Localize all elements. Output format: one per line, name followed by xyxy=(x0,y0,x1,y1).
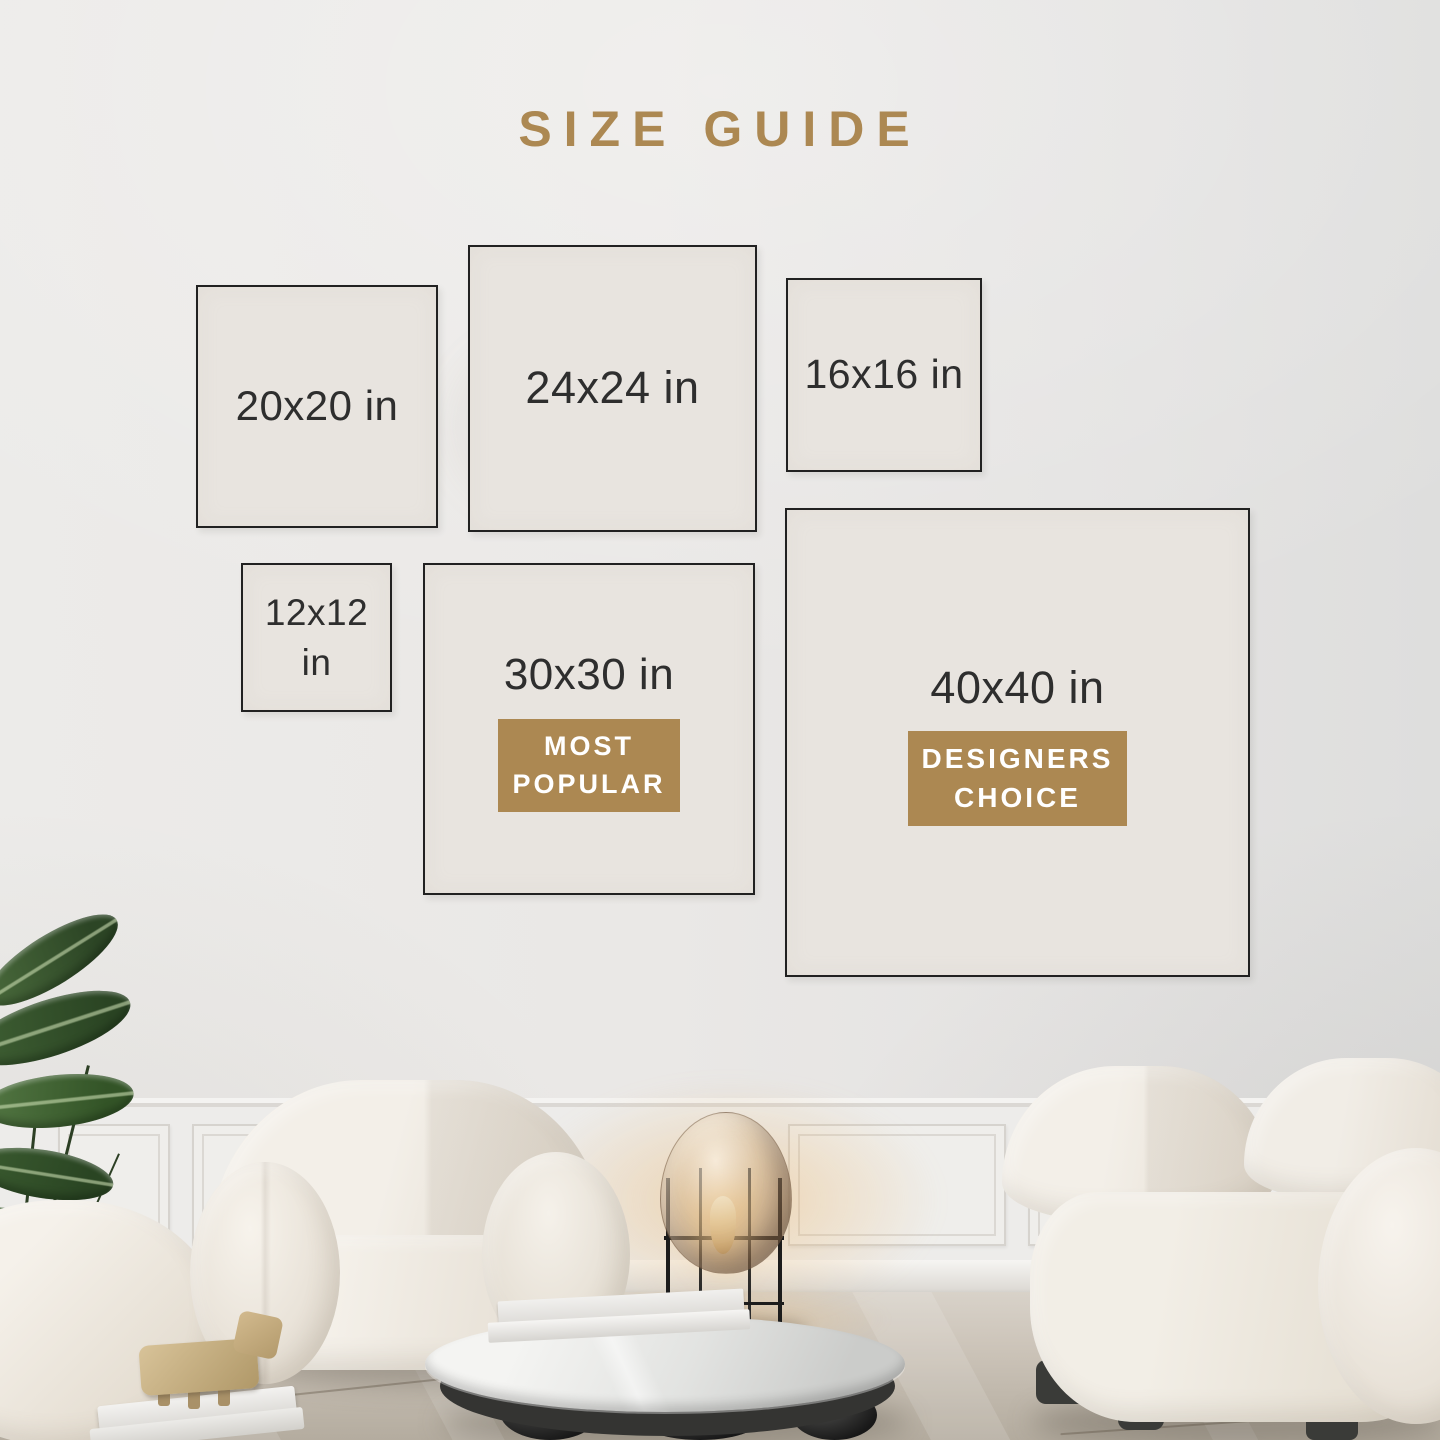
size-label: 24x24 in xyxy=(525,359,699,418)
size-guide-mockup: SIZE GUIDE 20x20 in 24x24 in 16x16 in 12… xyxy=(0,0,1440,1440)
size-frame-30x30: 30x30 in MOST POPULAR xyxy=(423,563,755,895)
badge-line: DESIGNERS xyxy=(922,740,1114,779)
page-title: SIZE GUIDE xyxy=(0,100,1440,158)
size-frame-16x16: 16x16 in xyxy=(786,278,982,472)
size-label: 16x16 in xyxy=(804,348,963,401)
size-label: 30x30 in xyxy=(504,646,674,703)
lamp-glass-shade xyxy=(660,1112,792,1274)
size-frame-40x40: 40x40 in DESIGNERS CHOICE xyxy=(785,508,1250,977)
size-frame-12x12: 12x12 in xyxy=(241,563,392,712)
size-label: 20x20 in xyxy=(236,379,399,434)
badge-line: MOST xyxy=(512,728,665,765)
size-frame-20x20: 20x20 in xyxy=(196,285,438,528)
size-frame-24x24: 24x24 in xyxy=(468,245,757,532)
size-label: 12x12 in xyxy=(264,588,370,688)
badge-designers-choice: DESIGNERS CHOICE xyxy=(908,731,1128,826)
wood-figurine-head xyxy=(232,1310,284,1360)
size-label: 40x40 in xyxy=(930,659,1104,718)
badge-line: CHOICE xyxy=(922,779,1114,818)
badge-most-popular: MOST POPULAR xyxy=(498,719,679,812)
badge-line: POPULAR xyxy=(512,766,665,803)
